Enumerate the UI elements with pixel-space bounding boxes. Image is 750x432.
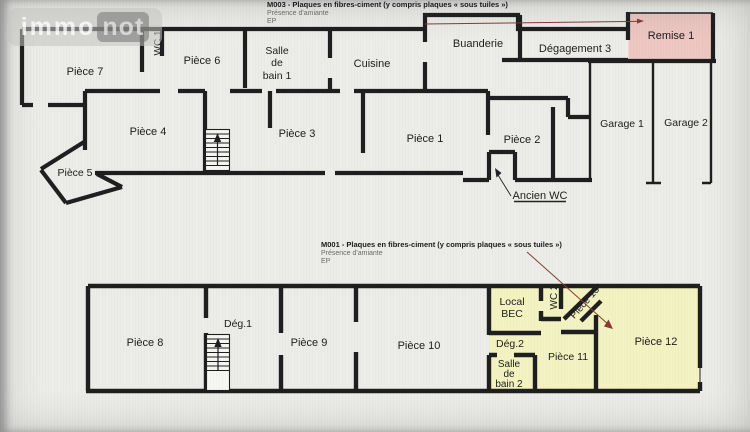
room-label-local-bec-l1: Local [499,296,524,308]
room-label-deg1: Dég.1 [224,318,252,330]
room-label-piece12: Pièce 12 [635,336,678,348]
immonot-watermark-logo: immo not [8,8,162,46]
annotation-m001-title: M001 - Plaques en fibres-ciment (y compr… [321,241,562,250]
room-label-buanderie: Buanderie [453,38,503,50]
staircase-top-plan [206,130,230,171]
floor-plan-canvas: Pièce 7 WC 1 Pièce 6 Salle de bain 1 Cui… [0,0,750,432]
annotation-m003: M003 - Plaques en fibres-ciment (y compr… [267,1,508,26]
room-label-salle-bain1-l2: de [271,57,283,69]
room-label-piece8: Pièce 8 [127,337,164,349]
room-label-piece3: Pièce 3 [279,128,316,140]
annotation-m001: M001 - Plaques en fibres-ciment (y compr… [321,241,562,266]
room-label-salle-bain1-l1: Salle [265,45,289,57]
annotation-m003-line3: EP [267,18,508,26]
room-label-wc2: WC 2 [549,284,560,309]
annotation-m003-line2: Présence d'amiante [267,10,508,18]
room-label-piece5: Pièce 5 [57,167,92,179]
room-label-salle-bain2-l3: bain 2 [495,379,523,390]
room-label-piece11: Pièce 11 [548,351,588,363]
floor-plan-page: immo not M003 - Plaques en fibres-ciment… [0,0,750,432]
room-label-ancien-wc: Ancien WC [512,190,567,202]
watermark-text-immo: immo [21,13,96,42]
room-label-piece2: Pièce 2 [504,134,541,146]
room-label-degagement3: Dégagement 3 [539,43,611,55]
room-label-salle-bain1-l3: bain 1 [263,70,292,82]
room-label-local-bec-l2: BEC [501,308,523,320]
room-label-deg2: Dég.2 [496,338,524,350]
room-label-garage1: Garage 1 [600,118,644,130]
room-label-piece1: Pièce 1 [407,133,444,145]
staircase-bottom-plan [207,335,230,391]
annotation-m003-title: M003 - Plaques en fibres-ciment (y compr… [267,1,508,10]
room-label-piece6: Pièce 6 [184,55,221,67]
annotation-m001-line2: Présence d'amiante [321,250,562,258]
annotation-m001-line3: EP [321,258,562,266]
room-label-piece4: Pièce 4 [130,126,167,138]
room-label-piece7: Pièce 7 [67,66,104,78]
room-label-piece10: Pièce 10 [398,340,441,352]
room-label-cuisine: Cuisine [354,58,391,70]
room-label-garage2: Garage 2 [664,117,708,129]
watermark-text-not: not [97,12,149,42]
room-label-remise1: Remise 1 [648,30,694,42]
room-label-piece9: Pièce 9 [291,337,328,349]
